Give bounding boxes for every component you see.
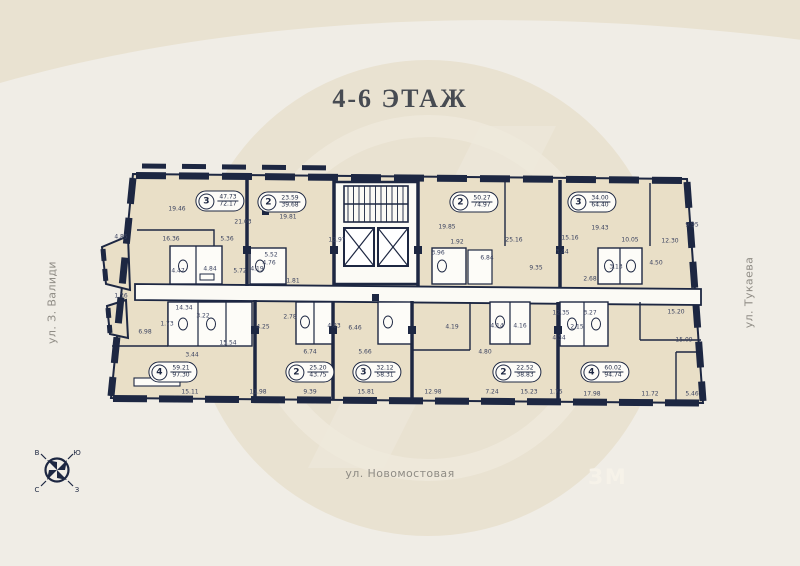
room-dimension-label: 9.39 [303,389,316,396]
room-dimension-label: 4.84 [203,266,216,273]
room-dimension-label: 3.22 [196,313,209,320]
room-dimension-label: 15.81 [357,389,374,396]
room-dimension-label: 2.68 [583,276,596,283]
room-dimension-label: 5.52 [264,252,277,259]
room-dimension-label: 12.30 [661,238,678,245]
room-dimension-label: 14.34 [175,305,192,312]
room-dimension-label: 9.35 [529,265,542,272]
room-dimension-label: 19.81 [279,214,296,221]
room-dimension-label: 5.72 [233,268,246,275]
room-dimension-label: 12.35 [552,310,569,317]
room-dimension-label: 1.92 [450,239,463,246]
room-dimension-label: 3.96 [431,250,444,257]
room-dimension-label: 4.19 [250,266,263,273]
room-dimension-label: 15.23 [520,389,537,396]
room-dimension-label: 2.15 [570,324,583,331]
room-dimension-label: 15.16 [561,235,578,242]
room-dimension-label: 4.14 [490,323,503,330]
room-dimension-label: 5.46 [685,391,698,398]
room-dimension-label: 17.98 [583,391,600,398]
room-dimension-label: 4.34 [552,335,565,342]
room-dimension-label: 11.72 [641,391,658,398]
room-dimension-label: 12.97 [328,237,345,244]
room-dimension-label: 16.36 [162,236,179,243]
room-dimension-label: 4.25 [256,324,269,331]
room-dimension-label: 1.36 [114,293,127,300]
room-dimension-label: 4.80 [478,349,491,356]
room-dimension-label: 15.54 [219,340,236,347]
room-dimension-label: 4.50 [649,260,662,267]
room-dimension-label: 1.75 [549,389,562,396]
room-dimension-label: 1.81 [286,278,299,285]
room-dimension-label: 3.27 [583,310,596,317]
room-dimension-label: 4.76 [262,260,275,267]
floor-plan-page: ЗМ 4-6 ЭТАЖ ул. З. Валиди ул. Тукаева ул… [0,0,800,566]
room-dimension-label: 21.03 [234,219,251,226]
room-dimension-label: 15.09 [675,337,692,344]
room-dimension-label: 5.36 [220,236,233,243]
room-dimension-label: 4.47 [171,268,184,275]
room-dimension-label: 4.16 [513,323,526,330]
room-dimension-label: 5.66 [358,349,371,356]
dimension-labels: 19.4621.0316.365.364.854.474.845.7219.81… [0,0,800,566]
room-dimension-label: 19.46 [168,206,185,213]
room-dimension-label: 12.98 [424,389,441,396]
room-dimension-label: 6.74 [303,349,316,356]
room-dimension-label: 19.43 [591,225,608,232]
room-dimension-label: 3.44 [555,249,568,256]
room-dimension-label: 6.98 [138,329,151,336]
room-dimension-label: 15.11 [181,389,198,396]
room-dimension-label: 11.98 [249,389,266,396]
room-dimension-label: 4.85 [114,234,127,241]
room-dimension-label: 10.05 [621,237,638,244]
room-dimension-label: 6.46 [348,325,361,332]
room-dimension-label: 1.73 [160,321,173,328]
room-dimension-label: 25.16 [505,237,522,244]
room-dimension-label: 19.85 [438,224,455,231]
room-dimension-label: 7.24 [485,389,498,396]
room-dimension-label: 15.20 [667,309,684,316]
room-dimension-label: 6.84 [480,255,493,262]
room-dimension-label: 4.19 [445,324,458,331]
room-dimension-label: 2.78 [283,314,296,321]
room-dimension-label: 3.44 [185,352,198,359]
room-dimension-label: 9.95 [685,222,698,229]
room-dimension-label: 4.83 [327,323,340,330]
room-dimension-label: 3.13 [609,264,622,271]
